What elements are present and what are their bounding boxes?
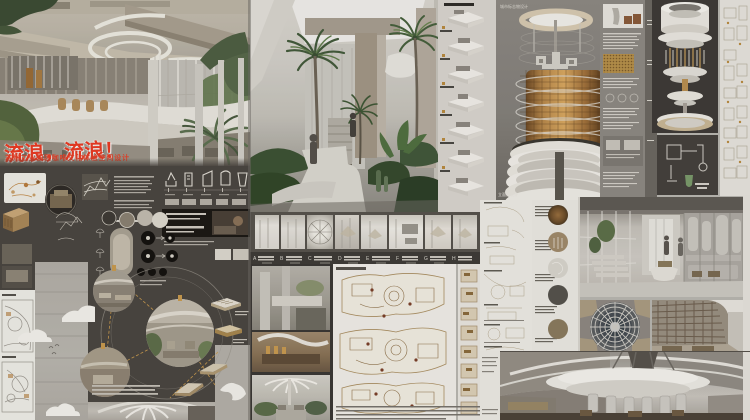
svg-text:E: E [366,256,370,262]
svg-text:H: H [452,256,456,262]
svg-text:F: F [396,256,399,262]
svg-text:D: D [338,256,342,262]
svg-text:立面图设计: 立面图设计 [498,191,518,197]
svg-text:G: G [424,256,428,262]
svg-text:B: B [280,256,284,262]
svg-text:C: C [308,256,312,262]
svg-text:A: A [253,256,257,262]
svg-text:城市标志物设计: 城市标志物设计 [500,3,528,9]
